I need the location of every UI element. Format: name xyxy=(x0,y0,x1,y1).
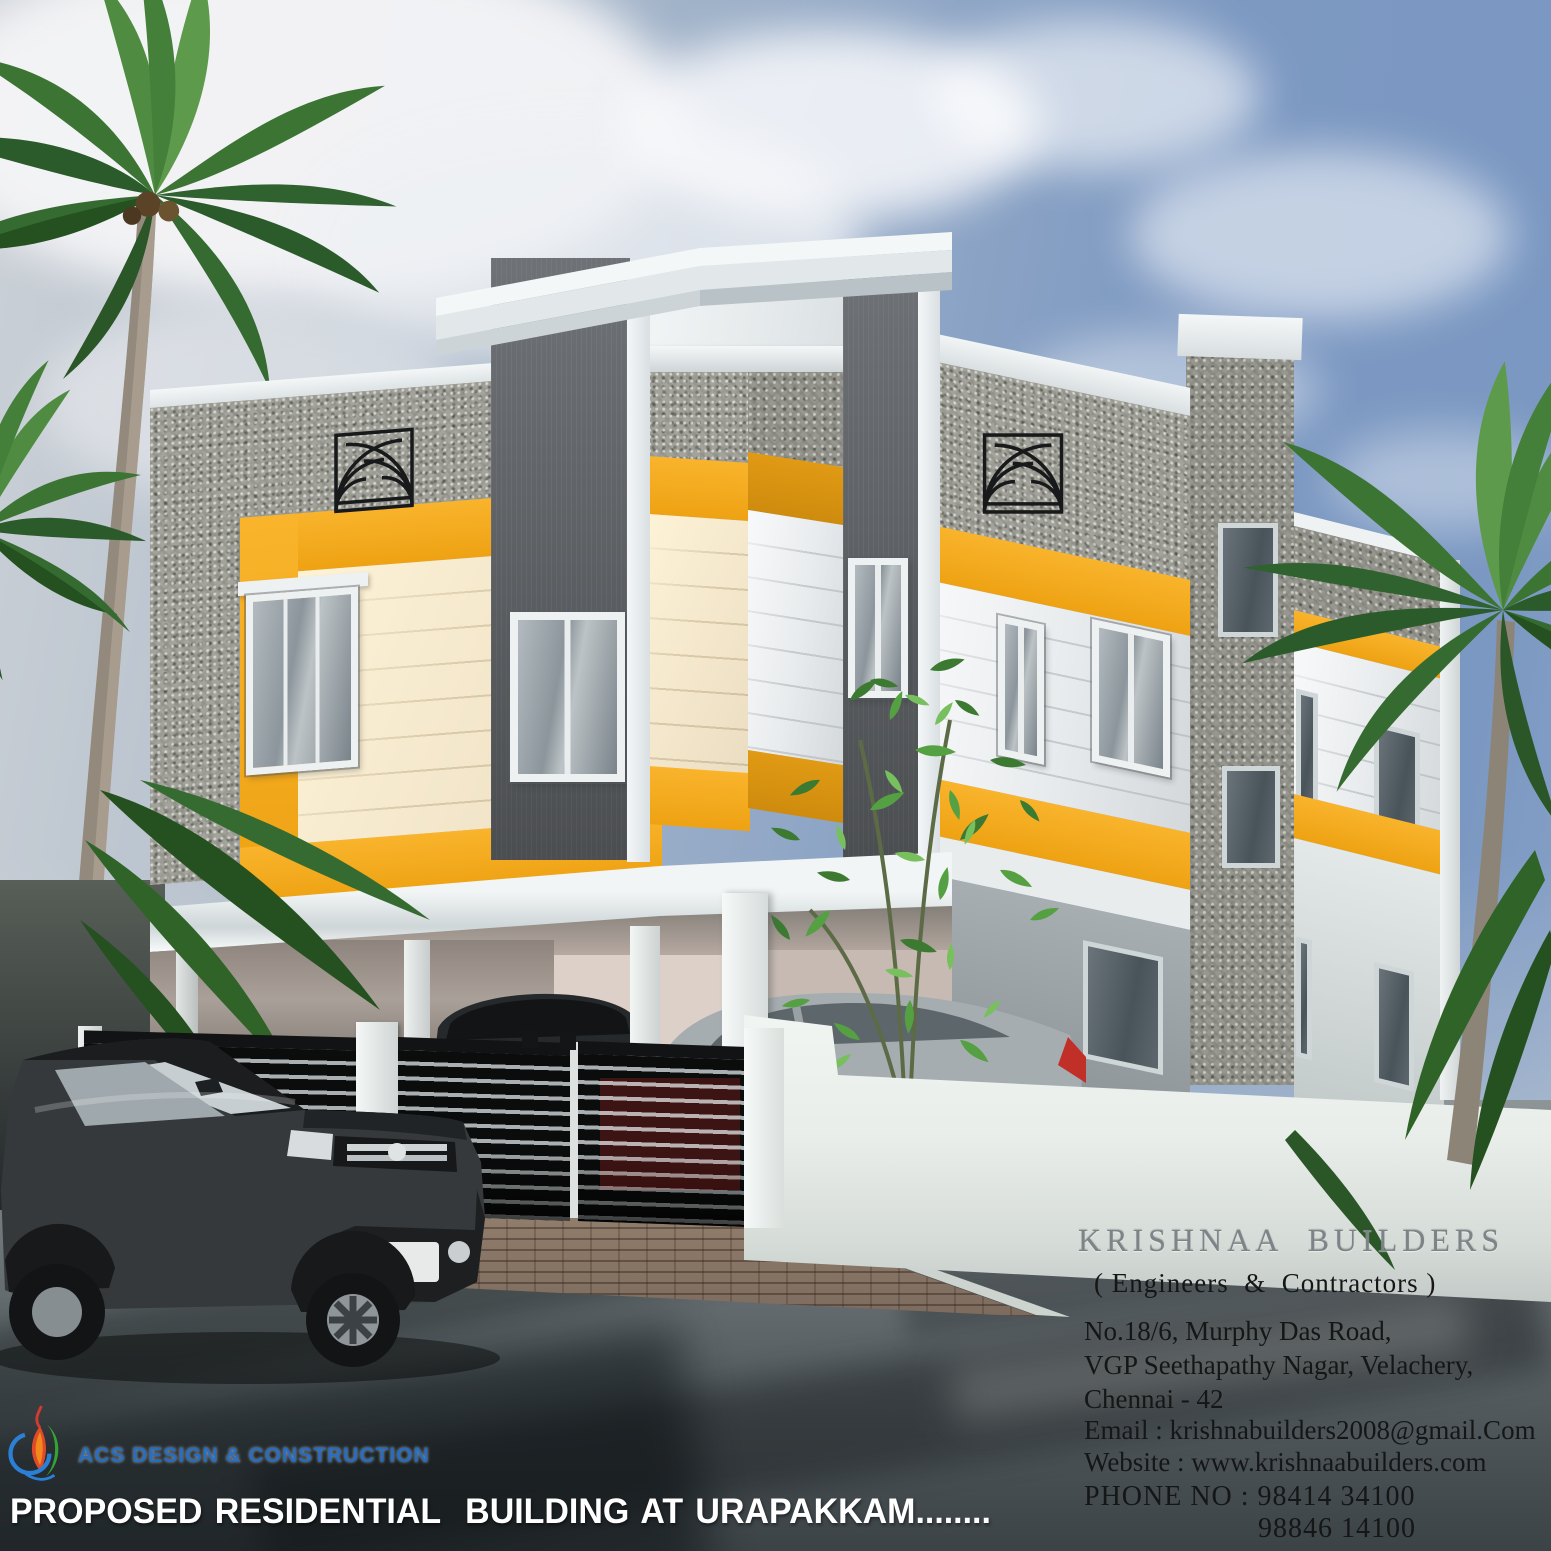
roof-railing xyxy=(332,424,416,516)
caption-title: PROPOSED RESIDENTIAL BUILDING AT URAPAKK… xyxy=(10,1492,991,1532)
architectural-rendering: KRISHNAA BUILDERS ( Engineers & Contract… xyxy=(0,0,1551,1551)
roof-canopy xyxy=(428,215,968,355)
palm-tree-right xyxy=(1235,290,1551,1270)
window xyxy=(246,587,358,776)
builder-email: Email : krishnabuilders2008@gmail.Com xyxy=(1084,1415,1536,1446)
cloud xyxy=(930,20,1260,170)
builder-subtitle: ( Engineers & Contractors ) xyxy=(1094,1268,1436,1299)
yellow-band xyxy=(648,456,750,521)
builder-phone2: 98846 14100 xyxy=(1258,1513,1416,1545)
builder-address-line1: No.18/6, Murphy Das Road, xyxy=(1084,1316,1391,1347)
builder-name: KRISHNAA BUILDERS xyxy=(1078,1222,1504,1259)
designer-name: ACS DESIGN & CONSTRUCTION xyxy=(78,1444,430,1468)
builder-address-line3: Chennai - 42 xyxy=(1084,1384,1223,1415)
gate-post xyxy=(744,1028,784,1228)
builder-phone1: PHONE NO : 98414 34100 xyxy=(1084,1481,1416,1513)
acs-logo-icon xyxy=(4,1404,76,1496)
roof-railing xyxy=(980,430,1066,516)
red-car-glimpse xyxy=(600,1070,740,1190)
panel-window xyxy=(510,612,625,782)
builder-address-line2: VGP Seethapathy Nagar, Velachery, xyxy=(1084,1350,1473,1381)
gate-hinge xyxy=(522,1030,538,1048)
gate-hinge xyxy=(560,1032,576,1050)
suv-car xyxy=(0,990,505,1390)
builder-website: Website : www.krishnaabuilders.com xyxy=(1084,1447,1486,1478)
gate-divider xyxy=(570,1042,578,1218)
